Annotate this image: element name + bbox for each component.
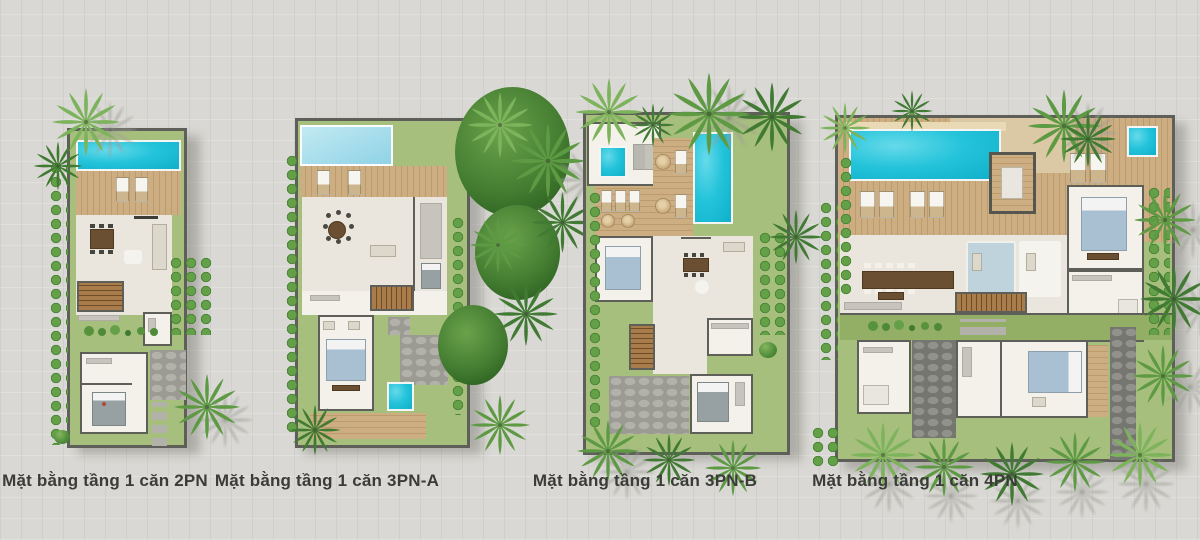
- bath-fixtures: [310, 295, 340, 301]
- palm-tree-icon: [1043, 430, 1107, 494]
- kitchen-counter: [711, 323, 749, 329]
- plan-caption-4pn: Mặt bằng tầng 1 căn 4PN: [812, 471, 1018, 491]
- staircase: [629, 324, 655, 370]
- dining-chairs: [864, 263, 871, 268]
- palm-tree-icon: [1138, 263, 1200, 335]
- kitchen-counter: [844, 302, 902, 310]
- bath-fixtures: [863, 347, 893, 353]
- hedge-strip: [587, 190, 600, 430]
- long-dining-table: [862, 271, 954, 289]
- hallway-floor: [653, 318, 707, 374]
- armchair: [972, 253, 982, 271]
- sun-lounger: [116, 177, 129, 202]
- bed-cushion: [102, 402, 106, 406]
- bath-vanity: [1072, 275, 1112, 281]
- bath-fixtures: [962, 347, 972, 377]
- plunge-pool: [387, 382, 414, 411]
- bed-bench: [1087, 253, 1119, 260]
- palm-tree-icon: [172, 372, 242, 442]
- hedge-strip: [48, 160, 68, 445]
- plunge-pool: [599, 146, 627, 178]
- sun-lounger: [675, 194, 687, 218]
- dining-chairs: [684, 253, 688, 257]
- sun-lounger: [860, 191, 875, 218]
- hedge-cluster: [168, 255, 214, 335]
- parasol: [655, 198, 671, 214]
- stone-court: [912, 340, 956, 438]
- bed: [92, 392, 126, 426]
- bed: [1081, 197, 1127, 251]
- palm-tree-icon: [1132, 187, 1198, 253]
- floor-plan-3pn-b: [545, 90, 815, 480]
- hedge-cluster: [810, 425, 840, 470]
- sofa: [723, 242, 745, 252]
- floor-plan-4pn: [800, 95, 1200, 535]
- sun-lounger: [601, 190, 612, 212]
- sun-lounger: [317, 170, 330, 195]
- swimming-pool: [300, 125, 393, 166]
- rug: [124, 250, 142, 264]
- staircase: [370, 285, 414, 311]
- bed-bench: [332, 385, 360, 391]
- rug: [695, 280, 709, 294]
- sun-lounger: [615, 190, 626, 212]
- sun-lounger: [910, 191, 925, 218]
- sun-lounger: [135, 177, 148, 202]
- palm-tree-icon: [468, 393, 532, 457]
- bath-fixtures: [735, 382, 745, 406]
- kitchen-island: [878, 292, 904, 300]
- dining-table: [90, 229, 114, 249]
- bed: [326, 339, 366, 381]
- palm-tree-icon: [735, 80, 809, 154]
- bush: [759, 342, 777, 358]
- tv-console: [134, 216, 158, 219]
- hedge-strip: [284, 153, 302, 433]
- palm-tree-icon: [1130, 343, 1196, 409]
- garden-shrubs: [84, 326, 94, 336]
- interior-wall: [82, 383, 132, 385]
- plunge-pool: [1127, 126, 1158, 157]
- sun-lounger: [879, 191, 894, 218]
- interior-wall: [413, 197, 415, 291]
- floor-plan-2pn: [40, 100, 240, 470]
- floor-plan-3pn-a: [270, 95, 570, 470]
- armchair: [323, 321, 335, 330]
- stone-path: [388, 317, 410, 335]
- bed: [1028, 351, 1082, 393]
- plan-caption-3pn-b: Mặt bằng tầng 1 căn 3PN-B: [533, 471, 757, 491]
- palm-tree-icon: [890, 89, 934, 133]
- daybed: [1001, 167, 1023, 199]
- kitchen-counter: [78, 315, 120, 321]
- round-dining-table: [328, 221, 346, 239]
- garden-shrubs: [868, 321, 878, 331]
- tv-wall: [681, 237, 711, 239]
- sun-lounger: [629, 190, 640, 212]
- dining-chairs: [90, 224, 95, 228]
- stepping-path: [152, 402, 167, 446]
- palm-tree-icon: [288, 403, 342, 457]
- palm-tree-icon: [1105, 420, 1175, 490]
- palm-tree-icon: [1058, 109, 1118, 169]
- dining-chairs: [326, 213, 331, 218]
- side-deck: [1088, 345, 1108, 417]
- armchair: [1032, 397, 1046, 407]
- sun-lounger: [929, 191, 944, 218]
- bed: [697, 382, 729, 422]
- staircase: [955, 292, 1027, 313]
- interior-wall: [840, 313, 1172, 315]
- armchair: [1026, 253, 1036, 271]
- bush: [54, 430, 70, 444]
- stepping-path: [960, 319, 1006, 335]
- palm-tree-icon: [818, 101, 872, 155]
- armchair: [348, 321, 360, 330]
- staircase: [77, 281, 124, 312]
- sun-lounger: [348, 170, 361, 195]
- dining-table: [683, 258, 709, 272]
- hedge-strip: [838, 155, 853, 295]
- bed: [605, 246, 641, 290]
- parasol: [601, 214, 615, 228]
- palm-tree-icon: [468, 215, 528, 275]
- interior-wall: [1000, 342, 1002, 416]
- parasol: [621, 214, 635, 228]
- sofa: [152, 224, 167, 270]
- palm-tree-icon: [630, 102, 676, 148]
- hedge-strip: [818, 200, 838, 360]
- bath-fixtures: [148, 318, 156, 332]
- floor-plan-sheet: Mặt bằng tầng 1 căn 2PN Mặt bằng tầng 1 …: [0, 0, 1200, 540]
- sofa: [370, 245, 396, 257]
- bath-vanity: [86, 358, 112, 364]
- kitchen-counter: [420, 203, 442, 259]
- palm-tree-icon: [32, 140, 84, 192]
- bathtub: [863, 385, 889, 405]
- plan-caption-3pn-a: Mặt bằng tầng 1 căn 3PN-A: [215, 471, 439, 491]
- plan-caption-2pn: Mặt bằng tầng 1 căn 2PN: [2, 471, 208, 491]
- daybed: [421, 263, 441, 289]
